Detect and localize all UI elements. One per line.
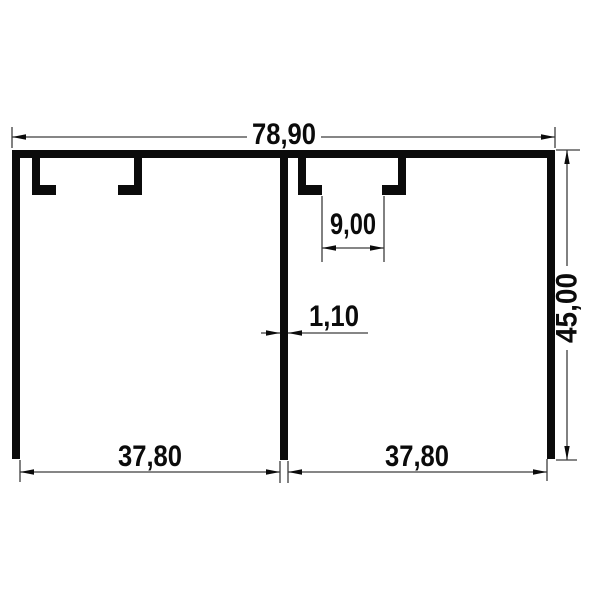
dim-wall-thickness-label: 1,10 bbox=[309, 300, 359, 333]
profile-center-wall bbox=[280, 150, 288, 460]
dim-right-bay: 37,80 bbox=[288, 440, 547, 483]
arrowhead-left bbox=[20, 469, 34, 474]
dim-left-bay-label: 37,80 bbox=[118, 440, 182, 473]
profile-left-wall bbox=[12, 150, 20, 459]
right-track-hook-left-foot bbox=[298, 185, 322, 195]
dim-height: 45,00 bbox=[551, 150, 584, 460]
arrowhead-up bbox=[564, 150, 569, 164]
arrowhead-left bbox=[288, 469, 302, 474]
left-track-hook-right-foot bbox=[118, 185, 142, 195]
dim-total-width-label: 78,90 bbox=[252, 118, 316, 151]
arrowhead-left bbox=[12, 134, 26, 139]
arrowhead-right bbox=[370, 245, 384, 250]
profile-body bbox=[12, 150, 555, 460]
dim-total-width: 78,90 bbox=[12, 118, 555, 151]
arrowhead-right bbox=[533, 469, 547, 474]
right-track-hook-right-foot bbox=[382, 185, 406, 195]
arrowhead-left-pointing bbox=[288, 330, 302, 335]
dim-groove-width: 9,00 bbox=[322, 196, 384, 262]
drawing-canvas: 78,90 9,00 1,10 bbox=[0, 0, 600, 600]
arrowhead-right bbox=[541, 134, 555, 139]
arrowhead-right bbox=[266, 469, 280, 474]
dim-right-bay-label: 37,80 bbox=[385, 440, 449, 473]
dim-wall-thickness: 1,10 bbox=[261, 300, 368, 336]
left-track-hook-left-foot bbox=[32, 185, 56, 195]
profile-drawing: 78,90 9,00 1,10 bbox=[0, 0, 600, 600]
arrowhead-left bbox=[322, 245, 336, 250]
dim-groove-width-label: 9,00 bbox=[330, 208, 376, 241]
arrowhead-down bbox=[564, 446, 569, 460]
arrowhead-right-pointing bbox=[266, 330, 280, 335]
dim-height-label: 45,00 bbox=[551, 273, 584, 343]
dim-left-bay: 37,80 bbox=[20, 440, 280, 483]
